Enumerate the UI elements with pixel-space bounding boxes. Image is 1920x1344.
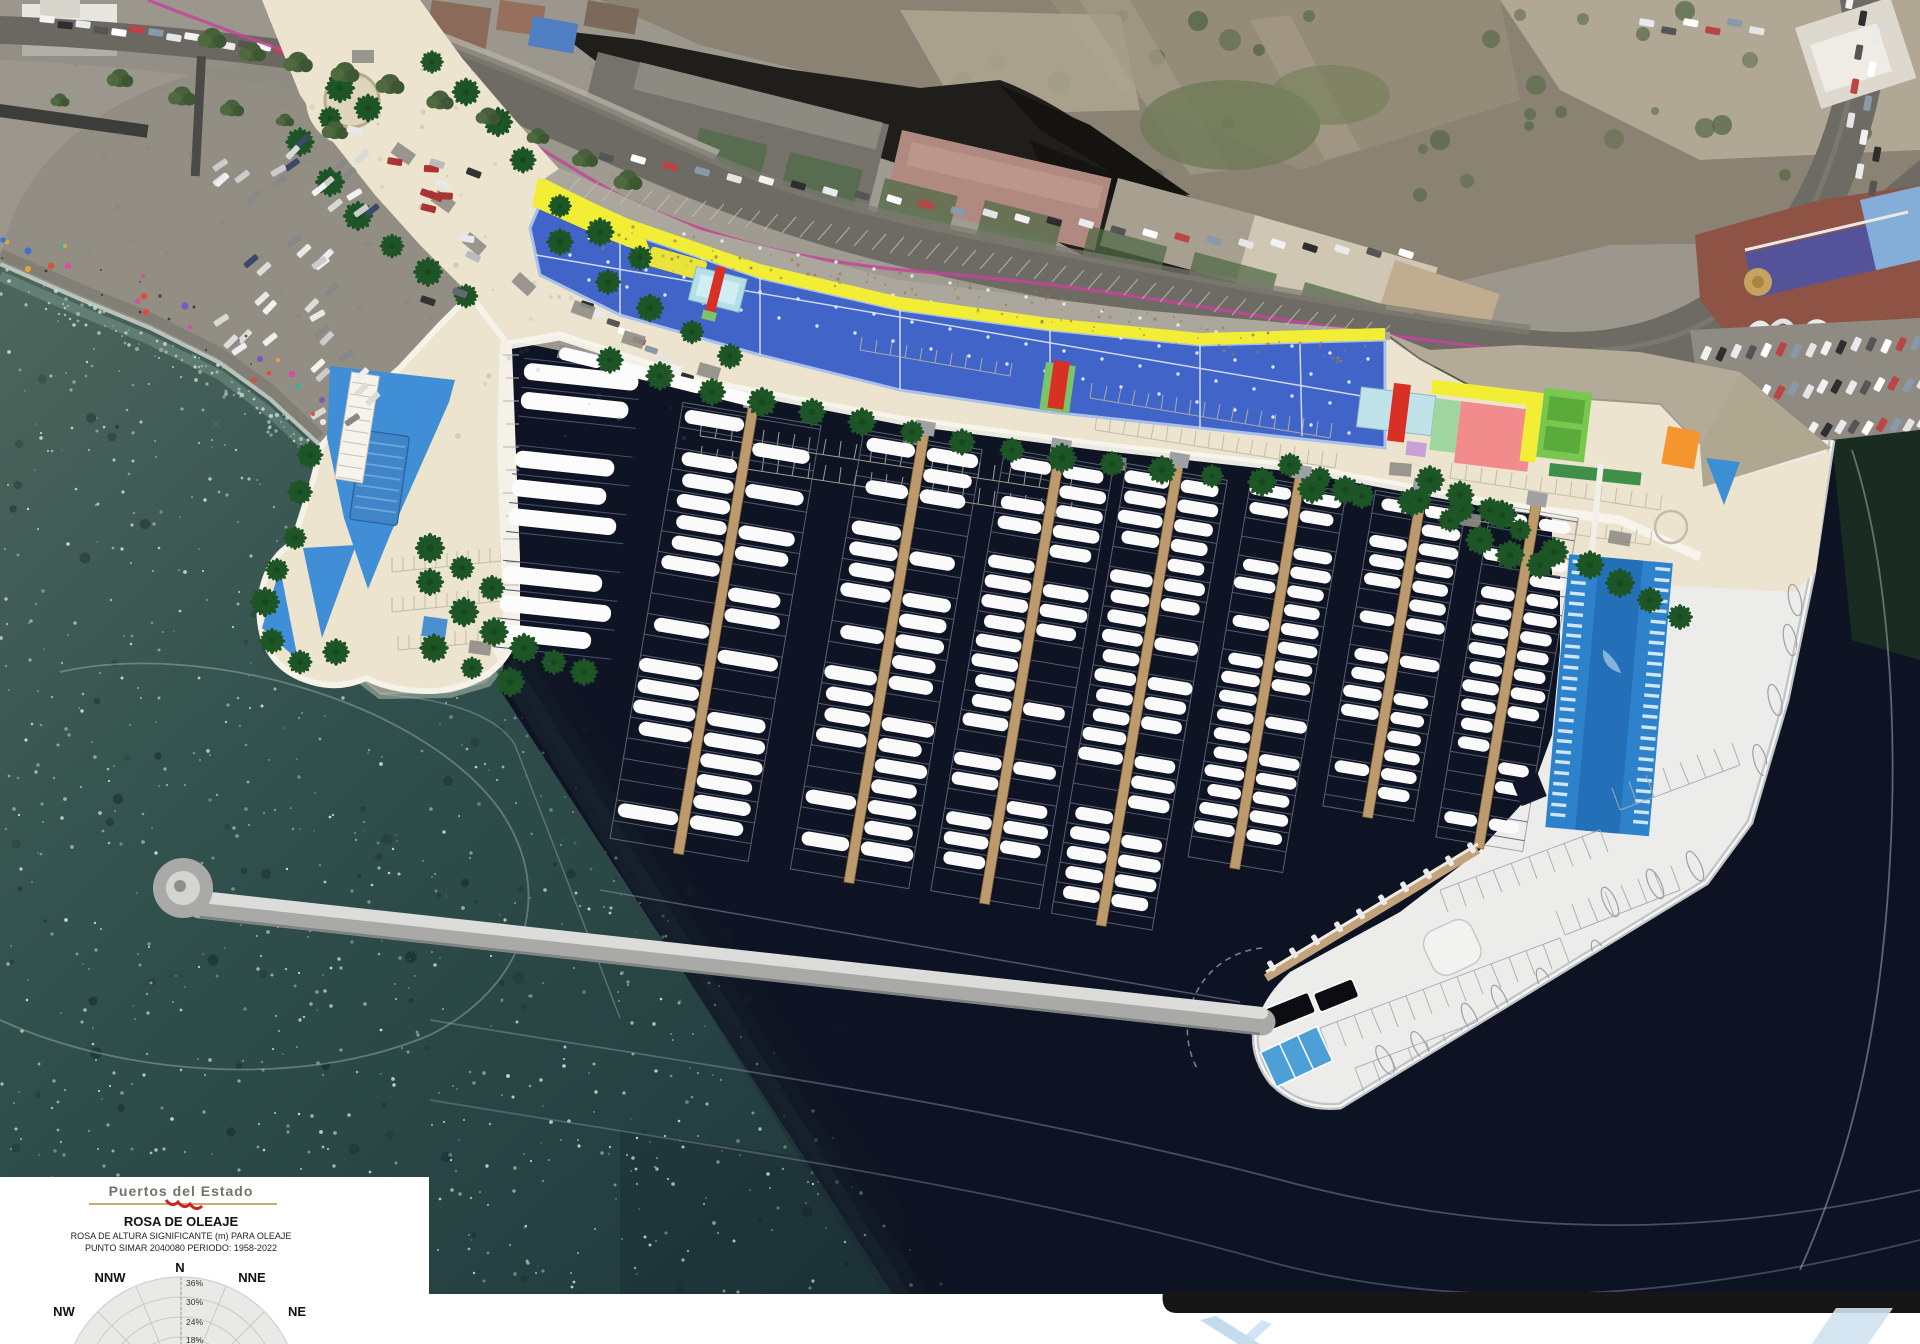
svg-text:N: N xyxy=(175,1260,184,1275)
svg-text:18%: 18% xyxy=(186,1335,203,1344)
svg-text:36%: 36% xyxy=(186,1278,203,1288)
svg-text:ROSA DE ALTURA SIGNIFICANTE (m: ROSA DE ALTURA SIGNIFICANTE (m) PARA OLE… xyxy=(71,1231,292,1241)
svg-text:NNW: NNW xyxy=(94,1270,126,1285)
svg-text:PUNTO SIMAR 2040080 PERIODO: 1: PUNTO SIMAR 2040080 PERIODO: 1958-2022 xyxy=(85,1243,277,1253)
svg-text:Puertos del Estado: Puertos del Estado xyxy=(109,1183,254,1199)
svg-text:24%: 24% xyxy=(186,1317,203,1327)
svg-text:NE: NE xyxy=(288,1304,306,1319)
svg-text:NNE: NNE xyxy=(238,1270,266,1285)
svg-text:NW: NW xyxy=(53,1304,75,1319)
svg-text:ROSA DE OLEAJE: ROSA DE OLEAJE xyxy=(124,1214,239,1229)
svg-text:30%: 30% xyxy=(186,1297,203,1307)
